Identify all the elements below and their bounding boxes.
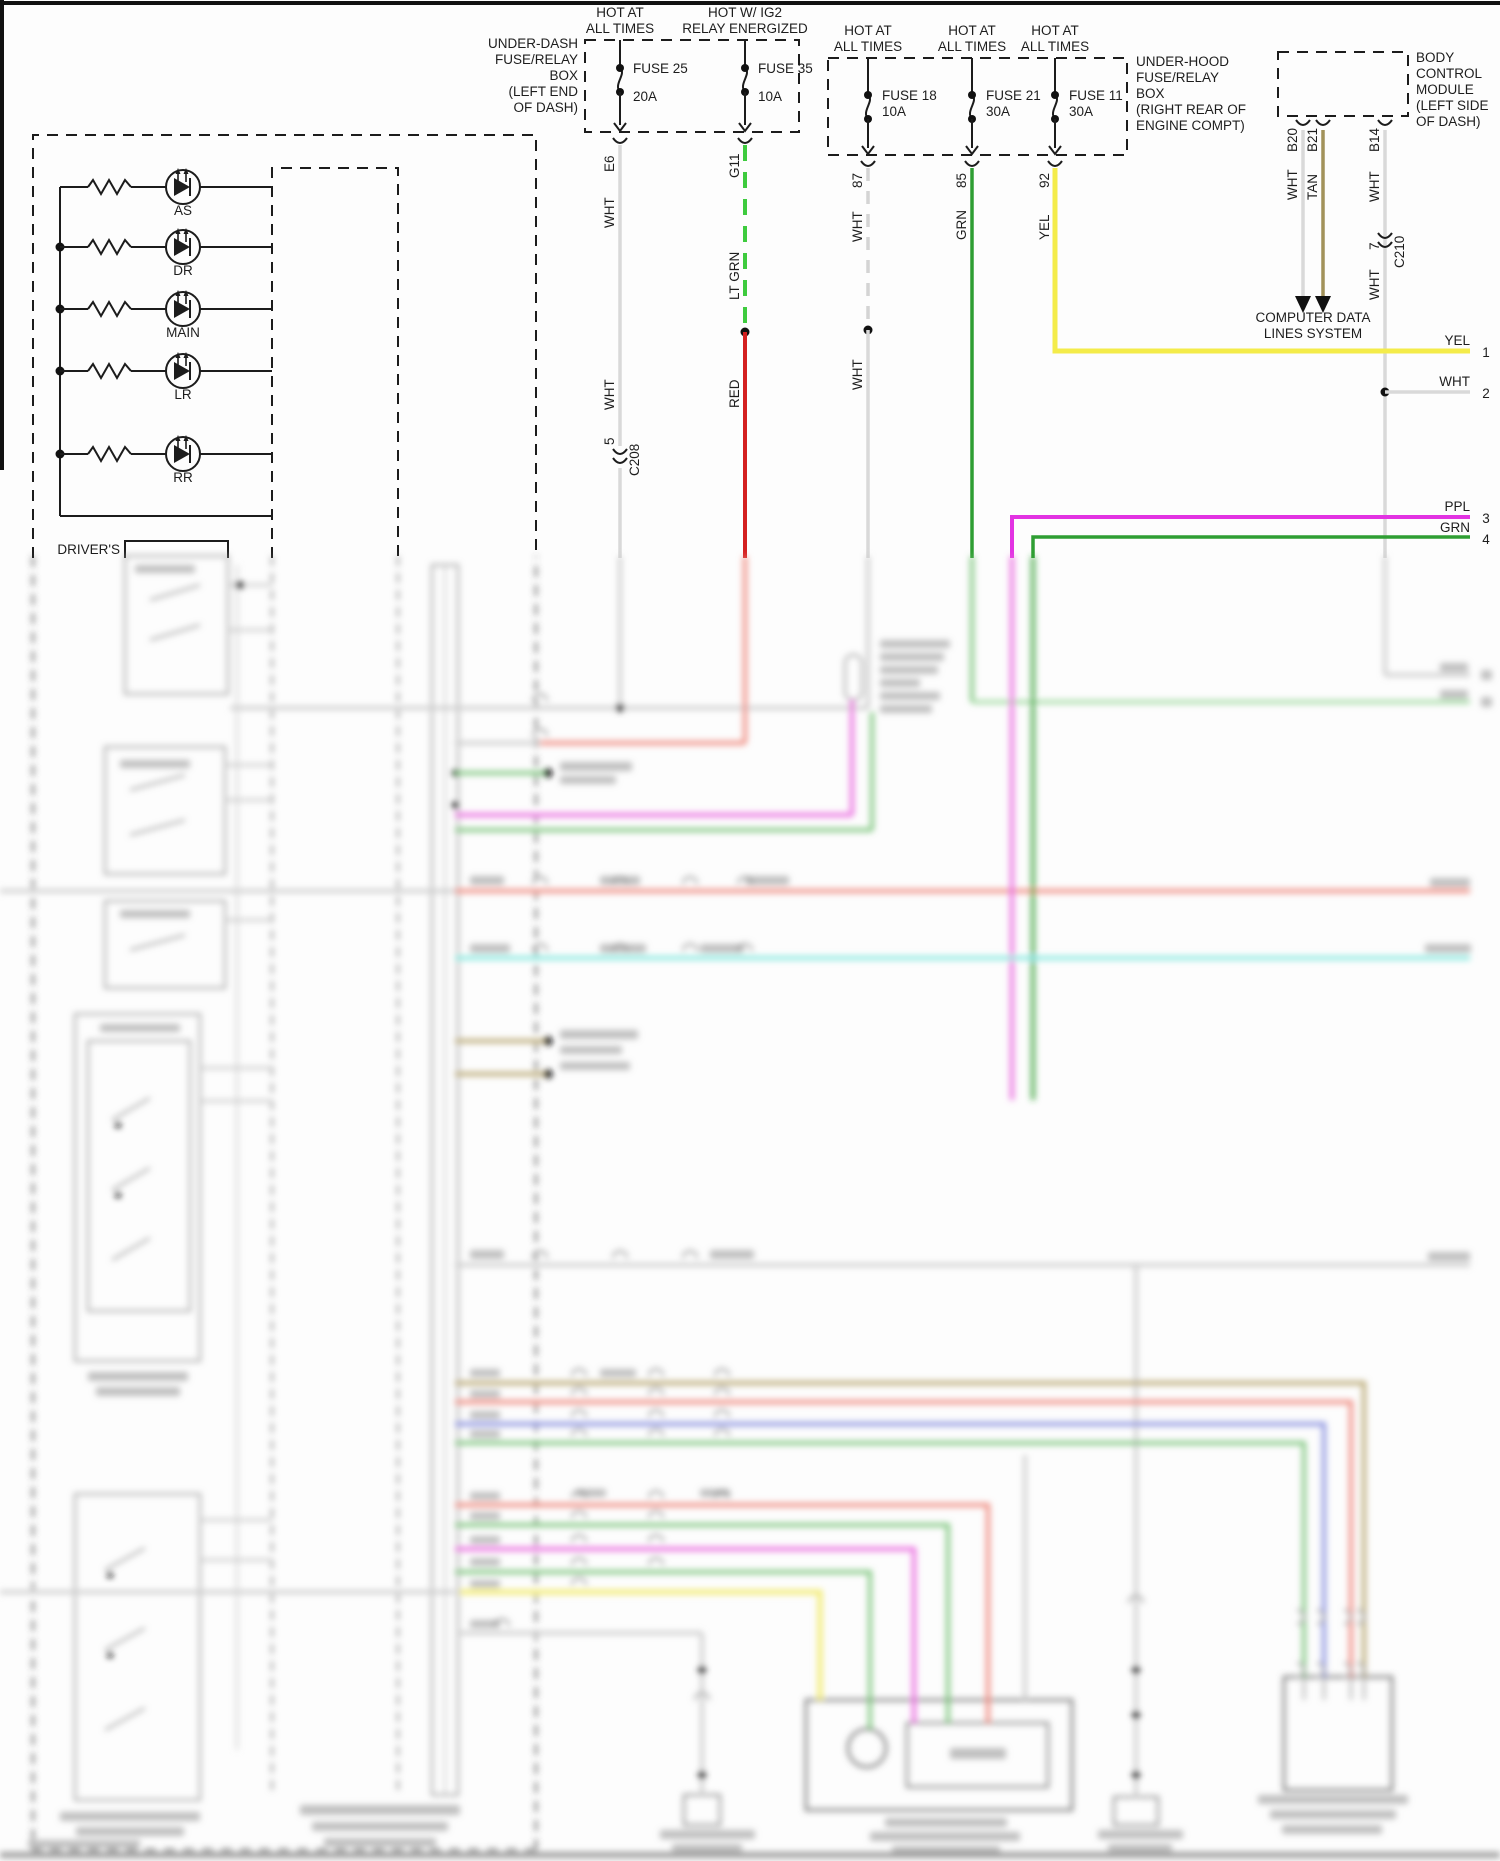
pin-label: B20 xyxy=(1285,128,1300,152)
terminal-color: YEL xyxy=(1444,333,1470,348)
page-frame xyxy=(0,0,1500,470)
terminal-number: 4 xyxy=(1482,532,1490,547)
pin-socket-icon xyxy=(861,161,875,166)
pin-socket-icon xyxy=(1048,161,1062,166)
box-label: (LEFT SIDE xyxy=(1416,98,1489,113)
indicator-label: AS xyxy=(174,203,192,218)
hot-label: ALL TIMES xyxy=(938,39,1006,54)
fuse-name: FUSE 21 xyxy=(986,88,1041,103)
box-label: BOX xyxy=(549,68,578,83)
fuse-name: FUSE 18 xyxy=(882,88,937,103)
hot-label: HOT AT xyxy=(596,5,644,20)
blurred-tan-wires xyxy=(455,1041,1364,1677)
fuse-21: FUSE 21 30A xyxy=(966,58,1041,154)
fuse-name: FUSE 35 xyxy=(758,61,813,76)
wiring-diagram: AS DR MAIN xyxy=(0,0,1500,1861)
box-label: UNDER-HOOD xyxy=(1136,54,1229,69)
under-hood-fuse-box: UNDER-HOOD FUSE/RELAY BOX (RIGHT REAR OF… xyxy=(828,23,1246,166)
wire-color-label: WHT xyxy=(850,211,865,242)
box-label: MODULE xyxy=(1416,82,1474,97)
indicator-row-as: AS xyxy=(60,168,272,218)
pin-socket-icon xyxy=(613,138,627,143)
blurred-ppl-wires xyxy=(455,556,1012,1723)
indicator-row-rr: RR xyxy=(60,435,272,485)
connector-c208-icon xyxy=(613,449,627,454)
box-label: (LEFT END xyxy=(508,84,578,99)
indicator-row-dr: DR xyxy=(60,228,272,278)
box-label: ENGINE COMPT) xyxy=(1136,118,1245,133)
connector-label: C208 xyxy=(627,444,642,476)
body-control-module: BODY CONTROL MODULE (LEFT SIDE OF DASH) … xyxy=(1255,50,1488,558)
supply-wires xyxy=(613,145,1470,558)
wiring-diagram-page: AS DR MAIN xyxy=(0,0,1500,1861)
wire-color-label: GRN xyxy=(954,210,969,240)
connector-c208-icon xyxy=(613,458,627,463)
wire-labels: E6 WHT WHT 5 C208 G11 LT GRN RED 87 WHT … xyxy=(602,127,1407,476)
inner-connector-dashed-outline xyxy=(272,168,398,558)
pin-label: 92 xyxy=(1037,173,1052,188)
fuse-35: FUSE 35 10A xyxy=(739,40,813,131)
pin-label: B14 xyxy=(1367,127,1382,152)
destination-label: COMPUTER DATA xyxy=(1255,310,1370,325)
hot-label: ALL TIMES xyxy=(586,21,654,36)
wire-color-label: WHT xyxy=(850,359,865,390)
fuse-name: FUSE 11 xyxy=(1069,88,1123,103)
wire-color-label: WHT xyxy=(1285,169,1300,200)
fuse-amps: 30A xyxy=(1069,104,1093,119)
pin-label: G11 xyxy=(727,153,742,178)
blurred-yel-wire xyxy=(460,1592,820,1700)
terminal-number: 3 xyxy=(1482,511,1490,526)
bulb-icon xyxy=(848,1729,886,1767)
terminal-rows: YEL 1 WHT 2 PPL 3 GRN 4 xyxy=(1012,333,1490,558)
terminal-color: WHT xyxy=(1439,374,1470,389)
box-label: OF DASH) xyxy=(513,100,578,115)
indicator-row-main: MAIN xyxy=(60,290,272,340)
terminal-number: 1 xyxy=(1482,345,1490,360)
connector-pin-label: 7 xyxy=(1367,242,1382,250)
fuse-amps: 10A xyxy=(882,104,906,119)
pin-socket-icon xyxy=(965,161,979,166)
wire-color-label: WHT xyxy=(602,379,617,410)
fuse-11: FUSE 11 30A xyxy=(1049,58,1123,154)
terminal-4-wire-grn xyxy=(1033,537,1470,558)
box-label: FUSE/RELAY xyxy=(495,52,578,67)
hot-label: ALL TIMES xyxy=(1021,39,1089,54)
box-label: BODY xyxy=(1416,50,1454,65)
wire-color-label: TAN xyxy=(1305,174,1320,200)
fuse-name: FUSE 25 xyxy=(633,61,688,76)
indicator-label: LR xyxy=(174,387,192,402)
hot-label: HOT AT xyxy=(1031,23,1079,38)
box-label: UNDER-DASH xyxy=(488,36,578,51)
box-label: FUSE/RELAY xyxy=(1136,70,1219,85)
fuse-amps: 30A xyxy=(986,104,1010,119)
terminal-color: GRN xyxy=(1440,520,1470,535)
hot-label: HOT W/ IG2 xyxy=(708,5,782,20)
indicator-row-lr: LR xyxy=(60,352,272,402)
fuse-25: FUSE 25 20A xyxy=(614,40,688,131)
blurred-region xyxy=(0,556,1500,1858)
wire-color-label: WHT xyxy=(1367,171,1382,202)
box-label: CONTROL xyxy=(1416,66,1482,81)
pin-label: 87 xyxy=(850,173,865,188)
fuse-amps: 10A xyxy=(758,89,782,104)
destination-label: LINES SYSTEM xyxy=(1264,326,1362,341)
indicator-label: MAIN xyxy=(166,325,200,340)
indicator-label: RR xyxy=(173,470,193,485)
fuse-18: FUSE 18 10A xyxy=(862,58,937,154)
terminal-color: PPL xyxy=(1444,499,1470,514)
connector-pin-label: 5 xyxy=(602,437,617,445)
pin-label: 85 xyxy=(954,173,969,188)
indicator-label: DR xyxy=(173,263,193,278)
connector-label: C210 xyxy=(1392,236,1407,268)
pin-label: B21 xyxy=(1305,128,1320,152)
component-dashed-outline xyxy=(33,135,536,558)
hot-label: RELAY ENERGIZED xyxy=(682,21,808,36)
wire-color-label: WHT xyxy=(602,197,617,228)
under-dash-fuse-box: UNDER-DASH FUSE/RELAY BOX (LEFT END OF D… xyxy=(488,5,813,143)
blurred-structures xyxy=(0,556,1500,1858)
box-label: BOX xyxy=(1136,86,1165,101)
pin-socket-icon xyxy=(1316,120,1330,125)
wire-color-label: LT GRN xyxy=(727,252,742,300)
blurred-text-blobs xyxy=(28,565,1492,1855)
drivers-label: DRIVER'S xyxy=(57,542,120,557)
wire-color-label: RED xyxy=(727,379,742,408)
hot-label: HOT AT xyxy=(948,23,996,38)
blurred-grn-wires xyxy=(455,556,1304,1729)
wire-color-label: WHT xyxy=(1367,269,1382,300)
pin-label: E6 xyxy=(602,155,617,172)
driver-indicator-circuit: AS DR MAIN xyxy=(33,135,536,558)
terminal-number: 2 xyxy=(1482,386,1490,401)
fuse-amps: 20A xyxy=(633,89,657,104)
pin-socket-icon xyxy=(1378,120,1392,125)
pin-socket-icon xyxy=(738,138,752,143)
wire-color-label: YEL xyxy=(1037,214,1052,240)
box-label: OF DASH) xyxy=(1416,114,1481,129)
box-label: (RIGHT REAR OF xyxy=(1136,102,1246,117)
hot-label: ALL TIMES xyxy=(834,39,902,54)
hot-label: HOT AT xyxy=(844,23,892,38)
pin-socket-icon xyxy=(1296,120,1310,125)
